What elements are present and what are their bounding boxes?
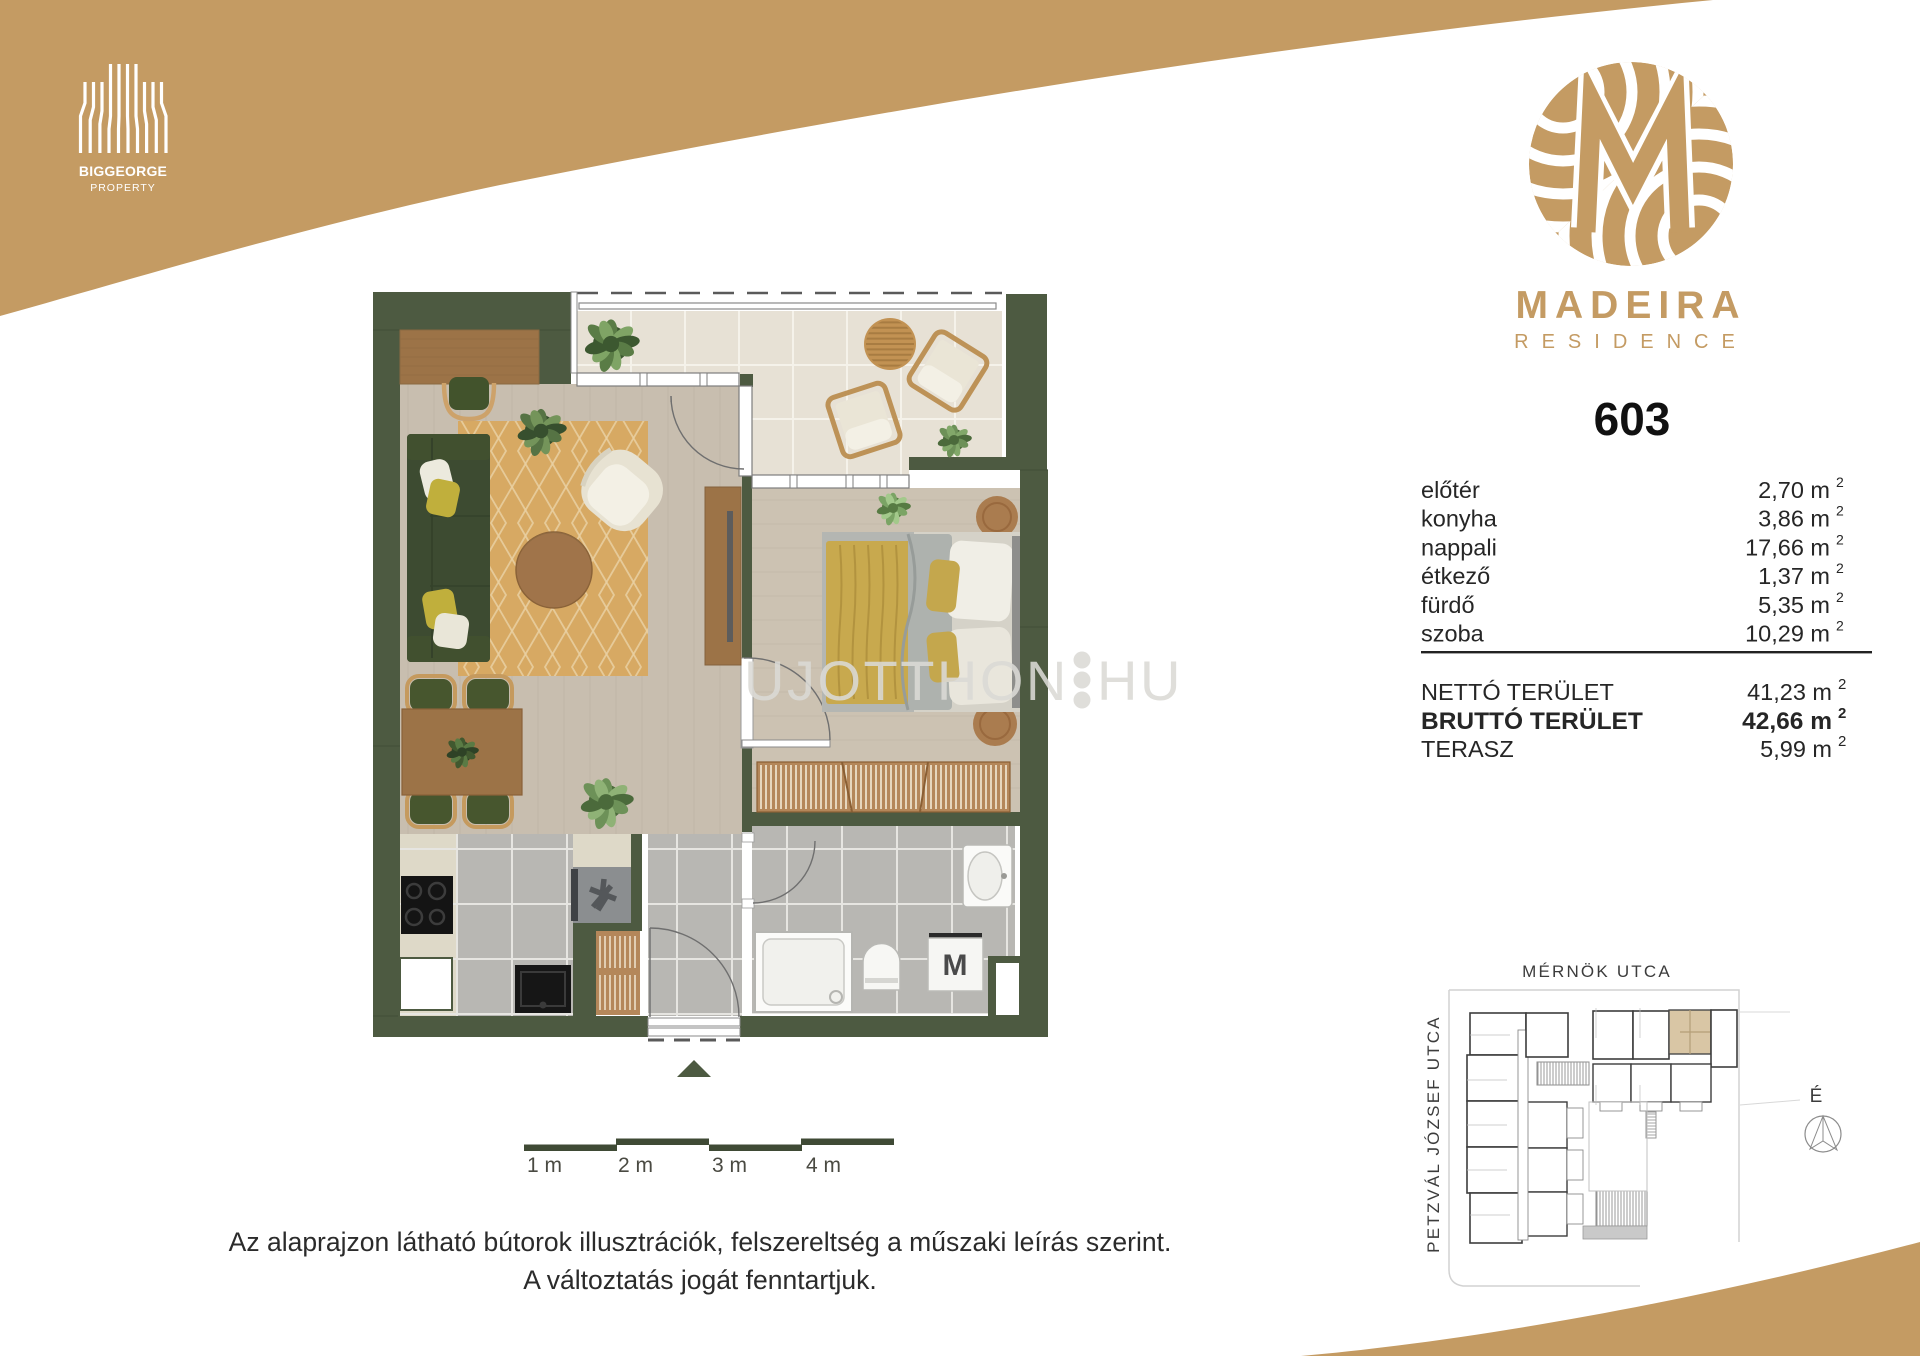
svg-text:2: 2 (1838, 705, 1846, 722)
svg-text:10,29 m: 10,29 m (1745, 621, 1830, 647)
svg-text:étkező: étkező (1421, 563, 1490, 589)
svg-text:BIGGEORGE: BIGGEORGE (79, 163, 167, 179)
svg-text:2,70 m: 2,70 m (1758, 477, 1830, 503)
svg-text:előtér: előtér (1421, 477, 1480, 503)
svg-text:MÉRNÖK UTCA: MÉRNÖK UTCA (1522, 962, 1672, 981)
svg-text:A változtatás jogát fenntartju: A változtatás jogát fenntartjuk. (523, 1265, 877, 1295)
svg-text:1 m: 1 m (527, 1154, 562, 1177)
svg-text:17,66 m: 17,66 m (1745, 534, 1830, 560)
svg-text:2: 2 (1836, 474, 1844, 490)
svg-text:RESIDENCE: RESIDENCE (1514, 331, 1748, 353)
svg-text:HU: HU (1097, 649, 1183, 712)
svg-text:3 m: 3 m (712, 1154, 747, 1177)
svg-text:2: 2 (1836, 531, 1844, 547)
svg-text:BRUTTÓ TERÜLET: BRUTTÓ TERÜLET (1421, 707, 1643, 735)
svg-text:M: M (943, 949, 968, 982)
svg-text:konyha: konyha (1421, 506, 1498, 532)
svg-text:2: 2 (1836, 589, 1844, 605)
svg-text:5,35 m: 5,35 m (1758, 592, 1830, 618)
svg-text:szoba: szoba (1421, 621, 1485, 647)
svg-text:41,23 m: 41,23 m (1747, 679, 1832, 705)
svg-text:4 m: 4 m (806, 1154, 841, 1177)
svg-text:2: 2 (1836, 503, 1844, 519)
svg-text:3,86 m: 3,86 m (1758, 506, 1830, 532)
svg-text:nappali: nappali (1421, 534, 1497, 560)
svg-text:Az alaprajzon látható bútorok: Az alaprajzon látható bútorok illusztrác… (229, 1227, 1172, 1257)
svg-text:É: É (1810, 1086, 1823, 1107)
svg-text:2: 2 (1836, 618, 1844, 634)
svg-text:42,66 m: 42,66 m (1742, 708, 1832, 735)
svg-text:NETTÓ TERÜLET: NETTÓ TERÜLET (1421, 679, 1614, 705)
svg-text:2: 2 (1836, 560, 1844, 576)
svg-text:5,99 m: 5,99 m (1760, 736, 1832, 762)
svg-text:PROPERTY: PROPERTY (90, 182, 156, 194)
svg-text:PETZVÁL JÓZSEF UTCA: PETZVÁL JÓZSEF UTCA (1424, 1015, 1443, 1253)
svg-text:2: 2 (1838, 733, 1846, 750)
svg-text:UJOTTHON: UJOTTHON (744, 649, 1069, 712)
svg-text:MADEIRA: MADEIRA (1516, 284, 1747, 327)
svg-text:1,37 m: 1,37 m (1758, 563, 1830, 589)
svg-text:TERASZ: TERASZ (1421, 736, 1514, 762)
svg-text:2 m: 2 m (618, 1154, 653, 1177)
svg-text:603: 603 (1594, 393, 1671, 445)
svg-text:2: 2 (1838, 676, 1846, 693)
svg-text:fürdő: fürdő (1421, 592, 1475, 618)
